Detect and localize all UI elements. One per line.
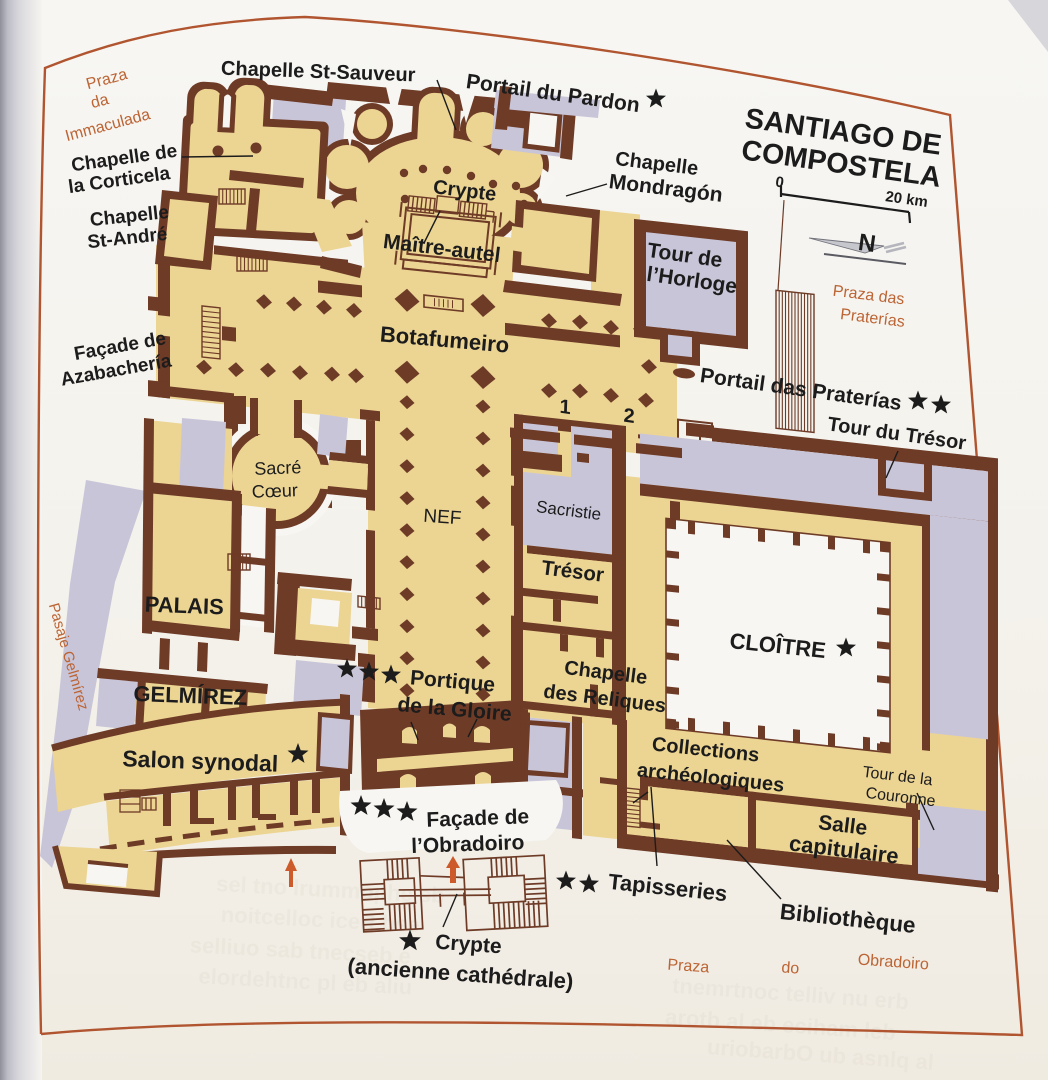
svg-text:Crypte: Crypte — [434, 931, 502, 959]
svg-text:2: 2 — [623, 405, 635, 428]
svg-text:l’Obradoiro: l’Obradoiro — [411, 831, 525, 858]
svg-text:Cœur: Cœur — [251, 480, 298, 502]
svg-text:Sacré: Sacré — [254, 457, 302, 479]
svg-text:PALAIS: PALAIS — [144, 592, 224, 620]
svg-text:Salon synodal: Salon synodal — [122, 745, 279, 776]
svg-text:1: 1 — [559, 396, 571, 419]
svg-text:Façade de: Façade de — [426, 805, 529, 832]
svg-text:Praza: Praza — [667, 957, 710, 977]
svg-text:NEF: NEF — [423, 506, 462, 530]
svg-text:do: do — [781, 959, 800, 977]
svg-text:GELMÍREZ: GELMÍREZ — [133, 681, 247, 710]
